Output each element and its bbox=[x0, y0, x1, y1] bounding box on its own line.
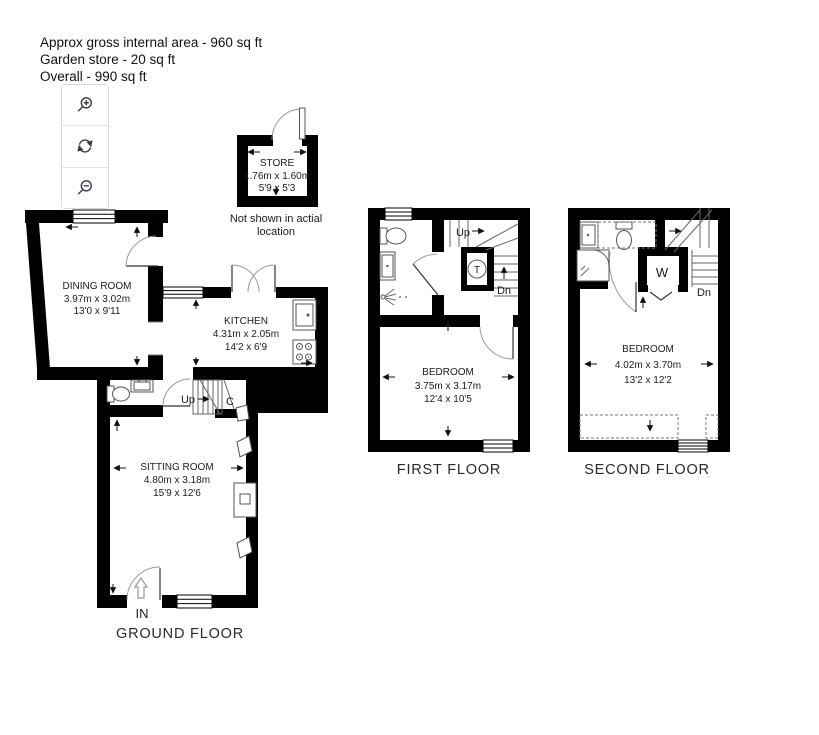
bathroom-sink bbox=[380, 252, 395, 280]
ground-floor-plan: DINING ROOM 3.97m x 3.02m 13'0 x 9'11 KI… bbox=[25, 210, 328, 642]
ensuite-toilet bbox=[616, 222, 632, 250]
entrance-label: IN bbox=[136, 606, 149, 621]
second-bedroom-imperial: 13'2 x 12'2 bbox=[624, 375, 672, 386]
dining-room-imperial: 13'0 x 9'11 bbox=[73, 306, 120, 317]
french-doors bbox=[232, 265, 275, 292]
kitchen-hob bbox=[293, 340, 316, 364]
wc-toilet bbox=[107, 386, 130, 402]
floorplan-page: Approx gross internal area - 960 sq ft G… bbox=[0, 0, 819, 735]
wardrobe bbox=[643, 292, 672, 308]
ground-floor-stairs bbox=[193, 380, 222, 414]
first-floor-windows bbox=[385, 208, 513, 452]
second-room-door bbox=[609, 252, 636, 312]
sitting-room-metric: 4.80m x 3.18m bbox=[144, 475, 210, 486]
dining-room-name: DINING ROOM bbox=[63, 281, 132, 292]
first-bedroom-imperial: 12'4 x 10'5 bbox=[424, 394, 472, 405]
wc-sink bbox=[131, 380, 153, 392]
shower-cubicle bbox=[577, 250, 609, 281]
store-size-imperial: 5'9 x 5'3 bbox=[259, 183, 296, 194]
ground-up-label: Up bbox=[181, 394, 195, 406]
kitchen-metric: 4.31m x 2.05m bbox=[213, 329, 279, 340]
first-bedroom-door bbox=[480, 327, 513, 359]
first-floor-walls bbox=[368, 208, 530, 452]
sitting-room-name: SITTING ROOM bbox=[140, 462, 213, 473]
zoom-in-button[interactable] bbox=[62, 85, 108, 125]
tank-label: T bbox=[474, 265, 480, 276]
floorplan-drawing: STORE 1.76m x 1.60m 5'9 x 5'3 Not shown … bbox=[0, 0, 819, 735]
first-bedroom-name: BEDROOM bbox=[422, 367, 474, 378]
first-floor-plan: Up T Dn BEDROOM 3.75m x 3.17m 12'4 x 10'… bbox=[368, 208, 530, 478]
rotate-icon bbox=[76, 137, 94, 155]
bathroom-door bbox=[413, 254, 438, 295]
image-viewer-toolbar bbox=[61, 84, 109, 209]
second-floor-label: SECOND FLOOR bbox=[584, 462, 710, 478]
store-size-metric: 1.76m x 1.60m bbox=[244, 171, 310, 182]
dining-room-door bbox=[126, 236, 158, 266]
shower-head-icon bbox=[381, 289, 407, 305]
ensuite-sink bbox=[580, 222, 598, 248]
entrance-arrow-icon bbox=[135, 578, 147, 598]
ground-floor-walls bbox=[25, 210, 328, 608]
second-floor-window bbox=[678, 440, 708, 452]
kitchen-sink bbox=[293, 300, 316, 330]
store-door bbox=[272, 108, 305, 140]
kitchen-imperial: 14'2 x 6'9 bbox=[225, 342, 268, 353]
second-down-label: Dn bbox=[697, 287, 711, 299]
cupboard-label: C bbox=[226, 396, 234, 408]
first-floor-dimension-arrows bbox=[383, 231, 514, 436]
ground-floor-label: GROUND FLOOR bbox=[116, 626, 244, 642]
bathroom-toilet bbox=[380, 228, 406, 244]
store-name: STORE bbox=[260, 158, 295, 169]
wardrobe-label: W bbox=[656, 265, 669, 280]
first-up-label: Up bbox=[456, 227, 470, 239]
dining-room-metric: 3.97m x 3.02m bbox=[64, 294, 130, 305]
rotate-button[interactable] bbox=[62, 125, 108, 166]
store-note-line1: Not shown in actial bbox=[230, 213, 322, 225]
second-bedroom-metric: 4.02m x 3.70m bbox=[615, 360, 681, 371]
second-bedroom-name: BEDROOM bbox=[622, 344, 674, 355]
eaves-storage bbox=[580, 415, 718, 438]
second-floor-plan: W Dn BEDROOM 4.02m x 3.70m 13'2 x 12'2 S… bbox=[568, 208, 730, 478]
first-bedroom-metric: 3.75m x 3.17m bbox=[415, 381, 481, 392]
first-down-label: Dn bbox=[497, 285, 511, 297]
kitchen-name: KITCHEN bbox=[224, 316, 268, 327]
magnifier-minus-icon bbox=[76, 179, 94, 197]
zoom-out-button[interactable] bbox=[62, 167, 108, 208]
magnifier-plus-icon bbox=[76, 96, 94, 114]
sitting-room-imperial: 15'9 x 12'6 bbox=[153, 488, 201, 499]
entrance-door bbox=[127, 567, 160, 600]
store-note-line2: location bbox=[257, 226, 295, 238]
store-plan: STORE 1.76m x 1.60m 5'9 x 5'3 Not shown … bbox=[230, 108, 322, 238]
first-floor-label: FIRST FLOOR bbox=[397, 462, 501, 478]
